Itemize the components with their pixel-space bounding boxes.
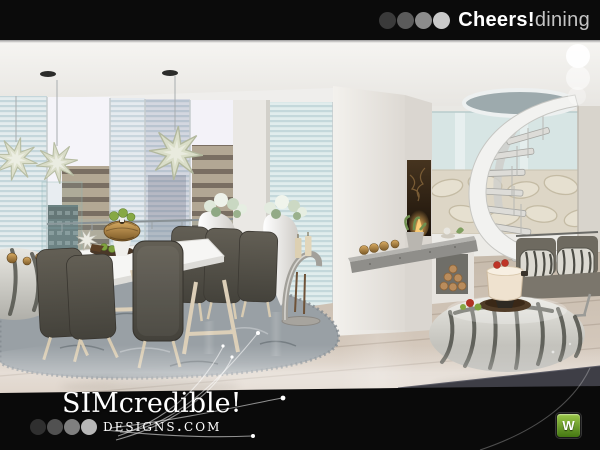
scene-render [0, 0, 600, 450]
set-title-light: dining [535, 9, 590, 31]
dot-icon [397, 12, 414, 29]
bottom-bar [0, 386, 600, 450]
side-dot-icon [566, 44, 590, 68]
promo-image: Cheers!dining SIMcredible! designs.com W [0, 0, 600, 450]
carved-panel-band [430, 170, 600, 234]
fireplace-opening [407, 160, 431, 238]
dot-icon [379, 12, 396, 29]
dot-icon [433, 12, 450, 29]
set-title: Cheers!dining [458, 9, 590, 32]
side-dot-icon [568, 87, 586, 105]
watermark-badge[interactable]: W [556, 413, 581, 438]
header-dots [379, 12, 450, 29]
set-title-bold: Cheers! [458, 9, 535, 31]
dot-icon [415, 12, 432, 29]
top-bar: Cheers!dining [0, 0, 600, 40]
